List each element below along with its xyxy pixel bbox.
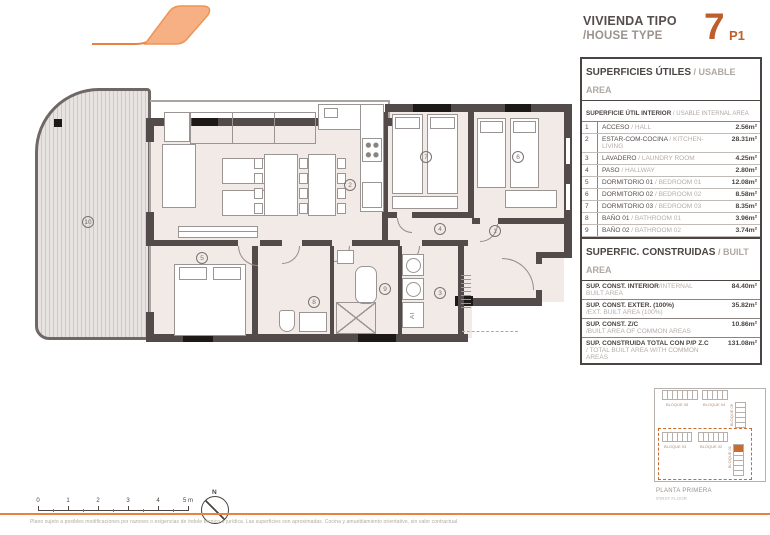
- chair: [299, 173, 308, 184]
- scale-minor-tick: [143, 509, 144, 512]
- scale-tick: [38, 506, 39, 511]
- scale-tick: [128, 506, 129, 511]
- scale-tick: [98, 506, 99, 511]
- stairs: [461, 274, 471, 308]
- washer: [402, 254, 424, 276]
- chair: [299, 203, 308, 214]
- scale-tick: [188, 506, 189, 511]
- pillow: [179, 267, 207, 280]
- covered-terrace: [35, 88, 151, 340]
- fridge: [362, 182, 382, 208]
- sofa: [190, 112, 316, 144]
- block-label: BLOQUE 02: [700, 444, 722, 449]
- parapet-line: [150, 100, 390, 102]
- wall-segment: [352, 240, 400, 246]
- chair: [254, 188, 263, 199]
- wall-segment: [412, 212, 474, 218]
- pillow: [480, 121, 503, 133]
- pillow: [513, 121, 536, 133]
- disclaimer-text: Plano sujeto a posibles modificaciones p…: [30, 519, 459, 525]
- scale-label: 5 m: [180, 498, 196, 504]
- room-number-10: 10: [82, 216, 94, 228]
- dining-table: [308, 154, 336, 216]
- block-grid: [735, 402, 746, 428]
- pillow: [213, 267, 241, 280]
- wall-accent: [358, 334, 396, 342]
- chair: [254, 158, 263, 169]
- block-label: BLOQUE 01: [727, 446, 732, 468]
- unit-location-highlight: [734, 445, 743, 452]
- footer-rule: [0, 513, 770, 515]
- wall-segment: [472, 218, 480, 224]
- room-number-2: 2: [344, 179, 356, 191]
- room-number-6: 6: [512, 151, 524, 163]
- pillow: [430, 117, 455, 129]
- scale-label: 0: [30, 498, 46, 504]
- water-heater: AT: [402, 302, 424, 328]
- bathtub: [355, 266, 377, 304]
- site-plan-caption-en: /FIRST FLOOR: [656, 496, 687, 501]
- north-label: N: [212, 489, 217, 496]
- scale-minor-tick: [113, 509, 114, 512]
- room-number-1: 1: [489, 225, 501, 237]
- chair: [254, 173, 263, 184]
- room-number-5: 5: [196, 252, 208, 264]
- stove: [362, 138, 382, 162]
- plan-sheet: { "header": { "title_es": "VIVIENDA TIPO…: [0, 0, 770, 535]
- block-grid: [662, 432, 692, 442]
- kitchen-sink: [324, 108, 338, 118]
- scale-label: 1: [60, 498, 76, 504]
- chair: [337, 188, 346, 199]
- scale-label: 2: [90, 498, 106, 504]
- block-label: BLOQUE 03: [664, 444, 686, 449]
- chair: [254, 203, 263, 214]
- wall-segment: [468, 112, 474, 218]
- wall-segment: [260, 240, 282, 246]
- block-label: BLOQUE 05: [666, 402, 688, 407]
- block-grid: [698, 432, 728, 442]
- wall-segment: [146, 118, 154, 142]
- boundary-dash: [462, 331, 518, 332]
- scale-tick: [158, 506, 159, 511]
- pillow: [395, 117, 420, 129]
- wall-segment: [302, 240, 332, 246]
- wall-segment: [536, 252, 542, 264]
- window-opening: [566, 184, 570, 210]
- wall-segment: [146, 312, 154, 342]
- chair: [337, 203, 346, 214]
- site-plan-caption-es: PLANTA PRIMERA: [656, 488, 712, 494]
- chair: [299, 158, 308, 169]
- scale-label: 4: [150, 498, 166, 504]
- chair: [337, 158, 346, 169]
- room-number-9: 9: [379, 283, 391, 295]
- dining-table: [264, 154, 298, 216]
- wall-segment: [498, 218, 566, 224]
- room-number-4: 4: [434, 223, 446, 235]
- toilet: [279, 310, 295, 332]
- wardrobe: [392, 196, 458, 209]
- washbasin: [299, 312, 327, 332]
- scale-minor-tick: [53, 509, 54, 512]
- scale-minor-tick: [173, 509, 174, 512]
- room-number-7: 7: [420, 151, 432, 163]
- sideboard: [178, 226, 258, 238]
- sofa-corner: [164, 112, 190, 142]
- sofa-chaise: [162, 144, 196, 208]
- scale-label: 3: [120, 498, 136, 504]
- block-grid: [702, 390, 728, 400]
- shower: [336, 302, 376, 334]
- block-label: BLOQUE 04: [703, 402, 725, 407]
- wall-accent: [413, 104, 451, 112]
- room-number-8: 8: [308, 296, 320, 308]
- dryer: [402, 278, 424, 300]
- window-opening: [566, 138, 570, 164]
- wall-segment: [385, 212, 397, 218]
- wardrobe: [505, 190, 557, 208]
- block-grid: [662, 390, 698, 400]
- scale-minor-tick: [83, 509, 84, 512]
- wall-segment: [564, 104, 572, 258]
- room-number-3: 3: [434, 287, 446, 299]
- washbasin: [337, 250, 354, 264]
- scale-tick: [68, 506, 69, 511]
- wall-accent: [505, 104, 531, 112]
- wall-segment: [146, 240, 238, 246]
- block-label: BLOQUE 06: [729, 404, 734, 426]
- chair: [299, 188, 308, 199]
- wall-segment: [472, 298, 542, 306]
- pillar: [54, 119, 62, 127]
- water-heater-label: AT: [403, 303, 423, 327]
